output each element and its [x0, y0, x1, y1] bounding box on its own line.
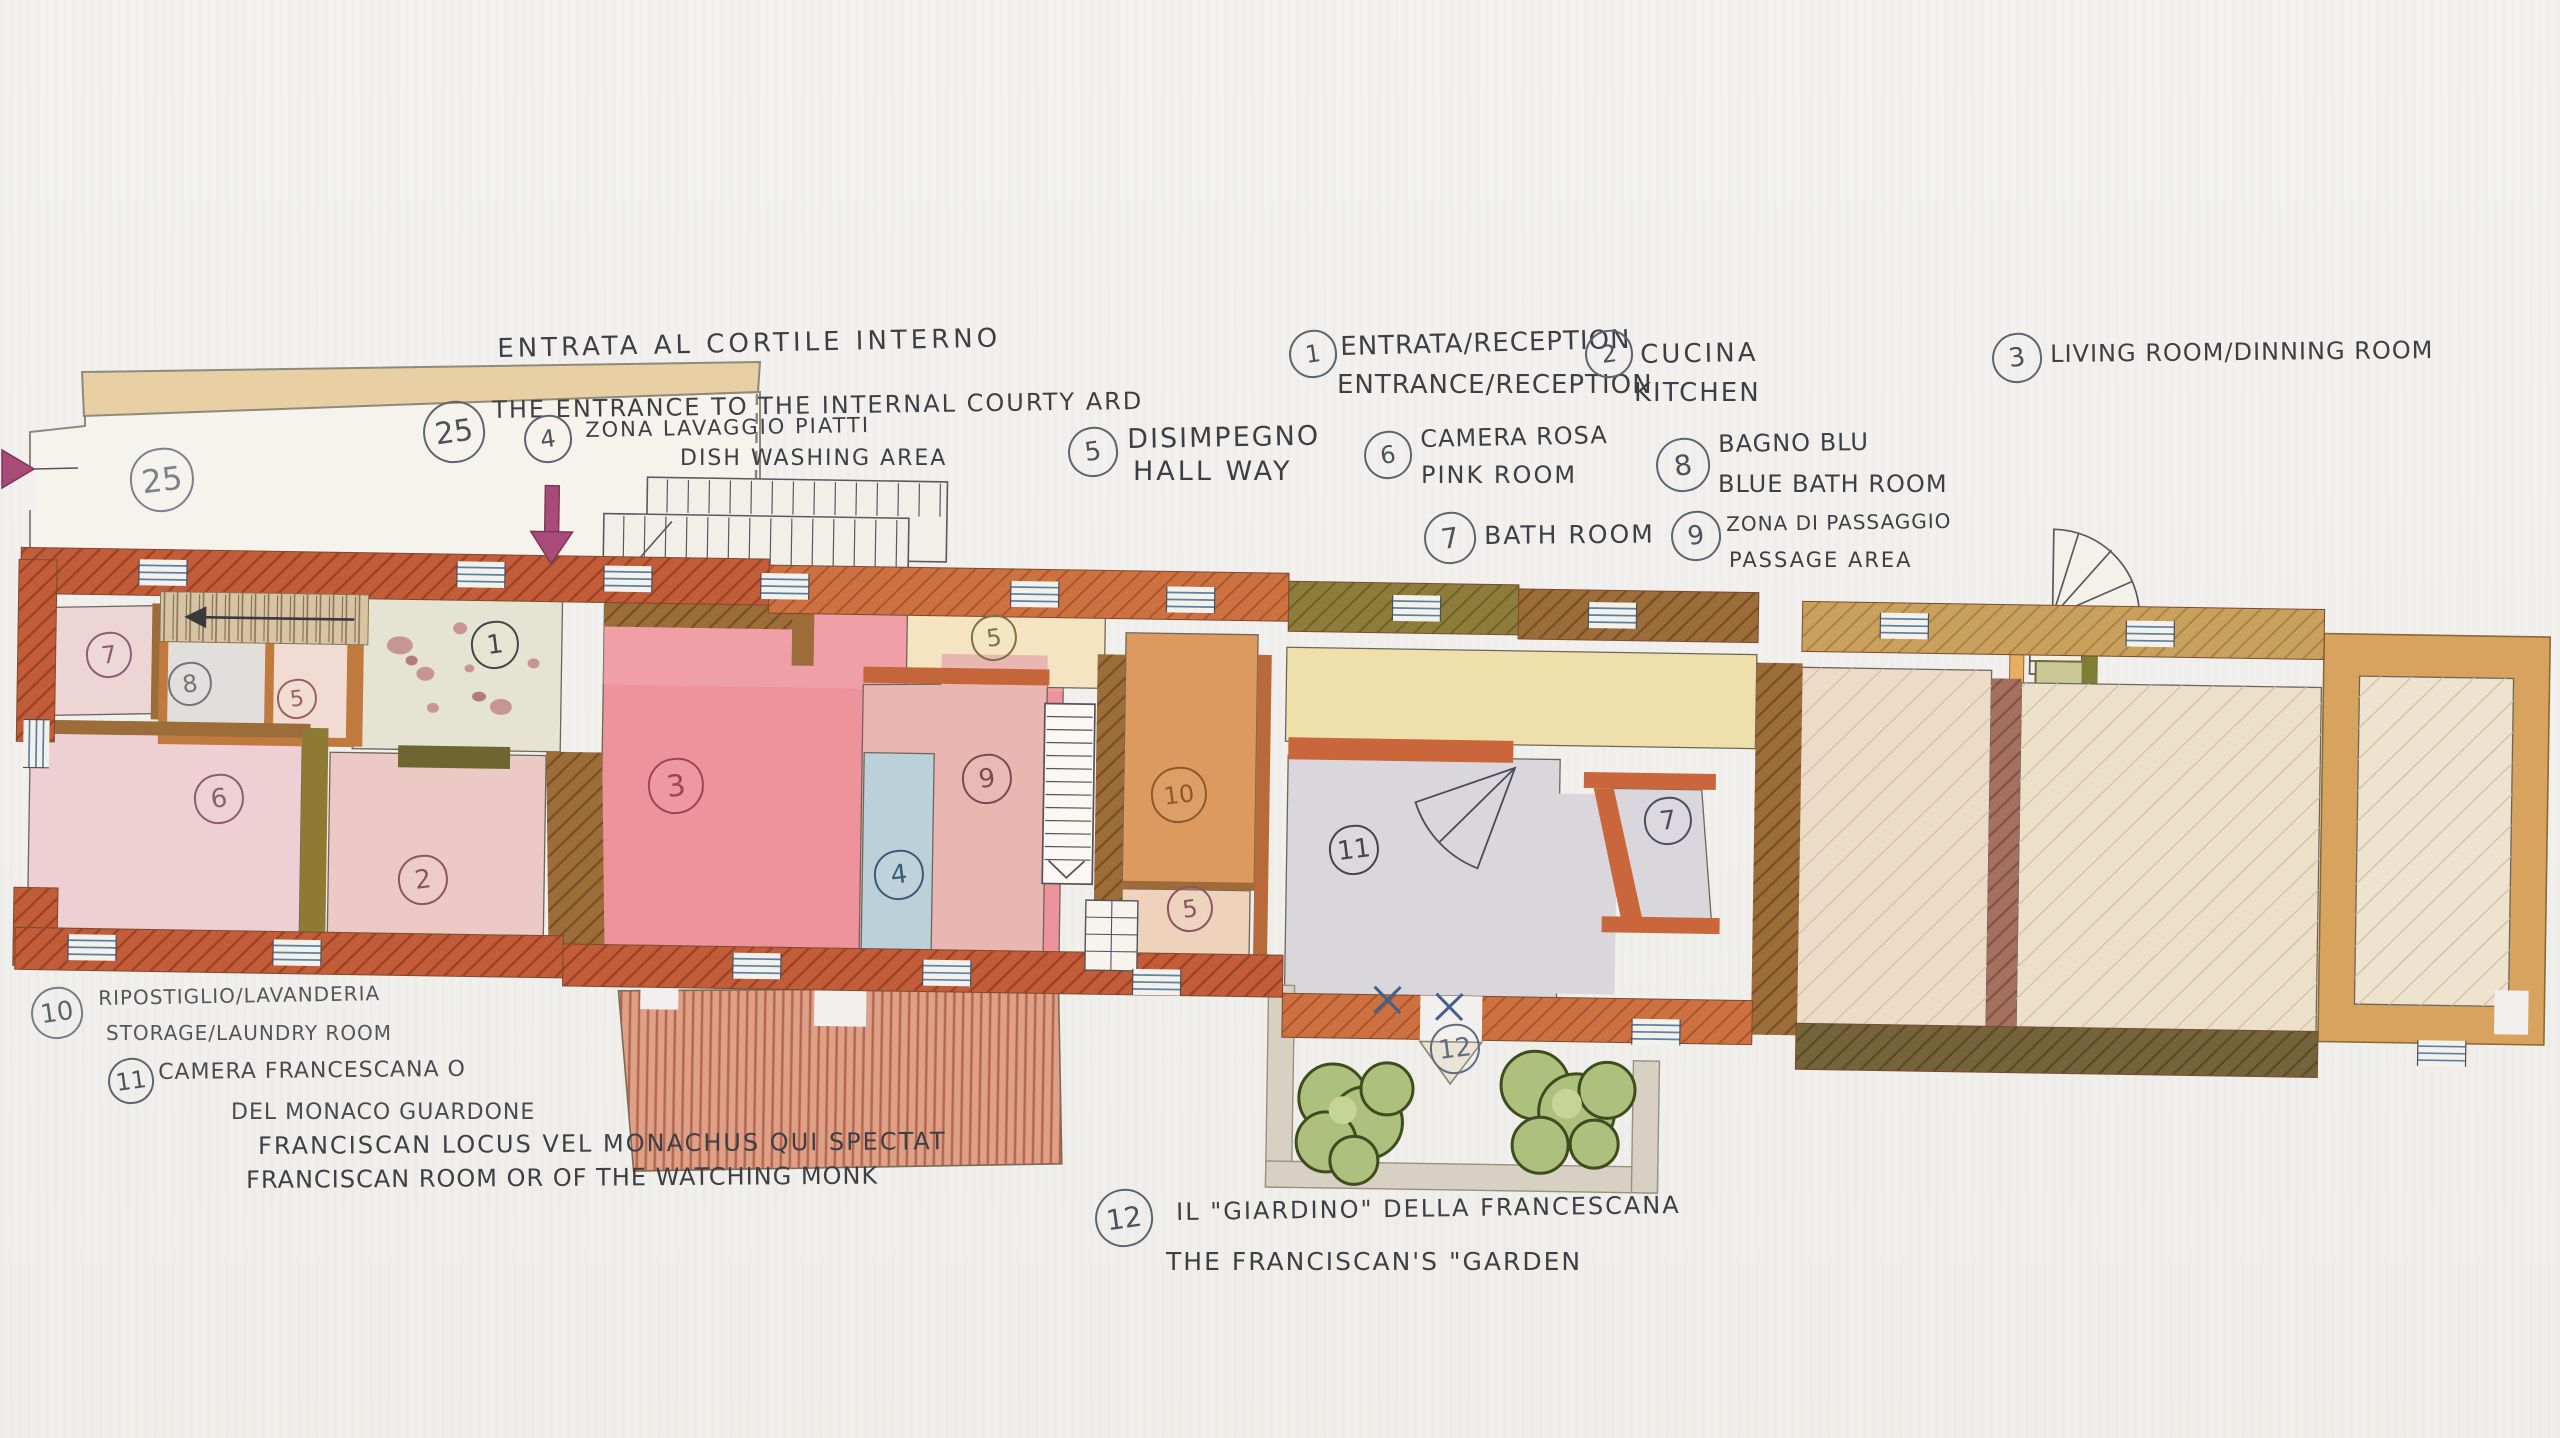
- legend-pinkroom-it: CAMERA ROSA: [1420, 421, 1608, 453]
- legend-franciscan-en: FRANCISCAN ROOM OR OF THE WATCHING MONK: [246, 1162, 878, 1194]
- legend-hallway-it: DISIMPEGNO: [1127, 421, 1320, 455]
- legend-kitchen-en: KITCHEN: [1634, 378, 1761, 408]
- legend-kitchen-it: CUCINA: [1640, 338, 1759, 370]
- legend-hallway-en: HALL WAY: [1133, 456, 1293, 487]
- legend-storage-it: RIPOSTIGLIO/LAVANDERIA: [98, 981, 380, 1010]
- building-strip: [10, 467, 2553, 1207]
- room-2-kitchen: [327, 752, 546, 955]
- staircase-small-steps: [1085, 900, 1138, 971]
- legend-living-en: LIVING ROOM/DINNING ROOM: [2050, 336, 2434, 368]
- legend-storage-en: STORAGE/LAUNDRY ROOM: [106, 1021, 392, 1045]
- room-10-storage: [1122, 633, 1258, 887]
- legend-dishwashing-it: ZONA LAVAGGIO PIATTI: [585, 413, 870, 442]
- staircase-vertical-mid: [1042, 703, 1095, 884]
- room-6-pink: [27, 728, 302, 936]
- legend-dishwashing-en: DISH WASHING AREA: [680, 446, 947, 471]
- legend-passage-en: PASSAGE AREA: [1729, 548, 1913, 572]
- staircase-top-left: [160, 592, 369, 645]
- room-1-reception: [352, 589, 562, 752]
- floor-plan-sketch: 25785612359410511712 ENTRATA AL CORTILE …: [0, 0, 2560, 1438]
- corridor-yellow: [1285, 647, 1756, 748]
- room-11-franciscan: [1284, 755, 1560, 1011]
- legend-garden-en: THE FRANCISCAN'S "GARDEN: [1166, 1247, 1582, 1276]
- legend-bluebath-it: BAGNO BLU: [1718, 428, 1869, 458]
- legend-bluebath-en: BLUE BATH ROOM: [1718, 470, 1948, 498]
- legend-franciscan-it2: DEL MONACO GUARDONE: [231, 1100, 535, 1125]
- legend-franciscan-latin: FRANCISCAN LOCUS VEL MONACHUS QUI SPECTA…: [258, 1127, 947, 1160]
- legend-pinkroom-en: PINK ROOM: [1421, 461, 1577, 489]
- legend-passage-it: ZONA DI PASSAGGIO: [1726, 509, 1952, 536]
- legend-franciscan-it1: CAMERA FRANCESCANA O: [158, 1057, 466, 1085]
- legend-bathroom-en: BATH ROOM: [1484, 520, 1655, 550]
